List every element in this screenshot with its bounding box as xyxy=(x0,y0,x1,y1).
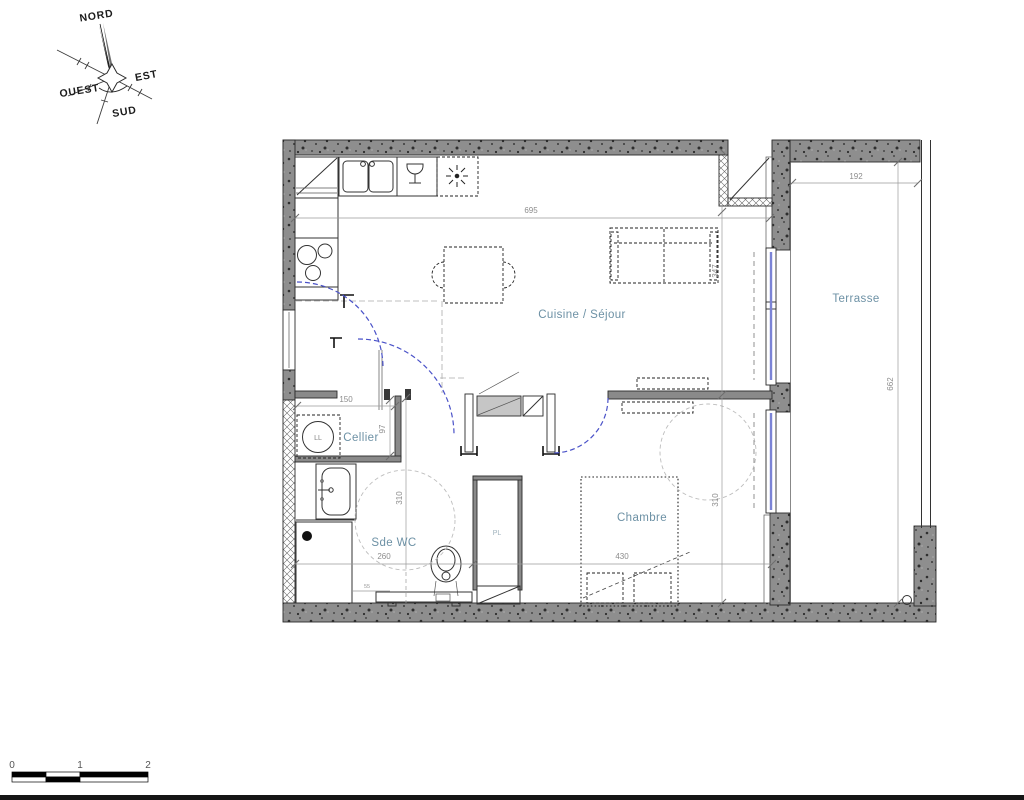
room-labels: Cuisine / Séjour Terrasse Cellier Chambr… xyxy=(343,293,879,549)
wall-divider-mid-pier xyxy=(770,383,790,412)
vanity-sink xyxy=(316,464,356,519)
glass-icon xyxy=(407,164,423,183)
toilet xyxy=(431,546,461,596)
door-leaf xyxy=(379,350,382,410)
dim-bedroom-height: 310 xyxy=(711,493,720,507)
wall-top xyxy=(283,140,728,155)
burst-icon xyxy=(446,165,468,187)
compass-hub-star xyxy=(98,64,126,92)
closet-wall-right xyxy=(518,476,522,590)
dim-cellar: 150 97 xyxy=(293,395,399,460)
wall-terrace-top xyxy=(790,140,920,162)
kitchen-units xyxy=(295,157,478,410)
shower-drain xyxy=(302,531,312,541)
bed xyxy=(581,477,678,606)
sink-unit xyxy=(339,157,397,196)
hall xyxy=(440,301,559,456)
svg-text:150: 150 xyxy=(339,395,353,404)
wall-left-upper xyxy=(283,140,295,310)
dim-terrace-width: 192 xyxy=(788,172,922,187)
living-window xyxy=(754,248,776,385)
closet-wall-left xyxy=(473,476,477,590)
floor-plan-canvas: LL xyxy=(0,0,1024,800)
svg-text:97: 97 xyxy=(378,424,387,433)
svg-text:310: 310 xyxy=(395,491,404,505)
dim-bedroom-width: 430 xyxy=(615,552,629,561)
exterior-walls xyxy=(283,140,936,622)
compass-south-label: SUD xyxy=(111,104,137,120)
entry-shaft xyxy=(719,148,772,206)
scale-bar: 0 1 2 xyxy=(9,760,151,782)
cellier-door-post-left xyxy=(384,389,390,400)
hall-jamb-left xyxy=(465,394,473,452)
pillow xyxy=(634,573,671,603)
compass-rose: NORD EST SUD OUEST xyxy=(57,7,159,124)
bedroom-furniture xyxy=(581,378,708,606)
wall-left-hatched xyxy=(283,400,295,605)
dim-step: 55 xyxy=(352,584,390,591)
dim-bathroom-width: 260 xyxy=(377,552,391,561)
label-bathroom: Sde WC xyxy=(371,537,416,549)
page-bottom-border xyxy=(0,795,1024,800)
svg-text:55: 55 xyxy=(364,584,370,590)
faucet-icon xyxy=(361,162,366,167)
bedroom-window xyxy=(754,410,776,513)
scale-0: 0 xyxy=(9,760,15,771)
door-swings xyxy=(297,282,756,570)
hall-jamb-right xyxy=(547,394,555,452)
compass-west-label: OUEST xyxy=(59,82,101,100)
label-cellar: Cellier xyxy=(343,432,378,444)
label-terrace: Terrasse xyxy=(832,293,879,305)
radiator xyxy=(637,378,708,389)
windows xyxy=(754,248,776,513)
pillow xyxy=(587,573,623,603)
washer-label: LL xyxy=(314,435,322,442)
svg-text:695: 695 xyxy=(524,206,538,215)
entry-door-swing xyxy=(730,158,769,200)
compass-north-label: NORD xyxy=(79,7,115,24)
door-leaf-mark xyxy=(330,338,342,348)
dim-living-width: 695 xyxy=(291,206,774,222)
svg-text:347: 347 xyxy=(711,264,720,278)
wall-terrace-right-block xyxy=(914,526,936,606)
shower xyxy=(296,522,352,603)
svg-text:192: 192 xyxy=(849,172,863,181)
wall-divider-lower xyxy=(770,513,790,605)
label-closet: PL xyxy=(493,530,502,537)
scale-1: 1 xyxy=(77,760,83,771)
pocket-swing xyxy=(479,372,519,394)
wall-bottom xyxy=(283,603,936,622)
svg-text:662: 662 xyxy=(886,377,895,391)
dim-bottom-row: 260 430 xyxy=(291,552,776,568)
dishwasher-unit xyxy=(397,157,437,196)
hall-closet-low xyxy=(477,586,520,604)
faucet-icon xyxy=(370,162,375,167)
cellier-room: LL xyxy=(297,415,340,458)
bathroom-fixtures xyxy=(296,464,520,606)
wall-left-block xyxy=(283,370,295,400)
dim-terrace-height: 662 xyxy=(886,158,902,607)
burner-icon xyxy=(306,266,321,281)
interior-walls xyxy=(295,389,772,590)
turning-circle xyxy=(660,404,756,500)
scale-2: 2 xyxy=(145,760,151,771)
label-bedroom: Chambre xyxy=(617,512,667,524)
compass-east-label: EST xyxy=(134,68,159,84)
turning-circle xyxy=(355,470,455,570)
hob-unit xyxy=(437,157,478,196)
wall-divider-upper xyxy=(772,140,790,250)
closet-wall-top xyxy=(473,476,522,480)
sofa xyxy=(610,228,718,283)
burner-icon xyxy=(298,246,317,265)
burner-icon xyxy=(318,244,332,258)
dining-table xyxy=(432,247,515,303)
label-living: Cuisine / Séjour xyxy=(538,309,626,321)
